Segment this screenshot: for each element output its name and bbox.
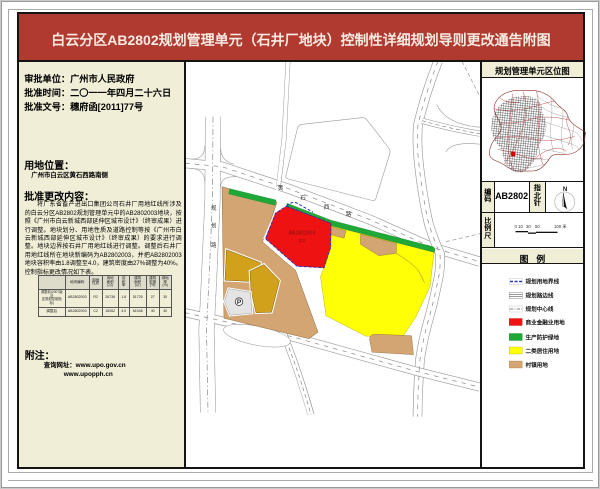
svg-text:N: N: [563, 186, 568, 193]
svg-text:规划用地界线: 规划用地界线: [526, 277, 560, 285]
svg-text:村镇用地: 村镇用地: [526, 361, 549, 369]
svg-text:30: 30: [526, 224, 531, 229]
svg-text:路: 路: [346, 210, 352, 218]
svg-text:100 米: 100 米: [554, 223, 567, 230]
svg-text:黄: 黄: [278, 184, 284, 192]
svg-text:商业金融业用地: 商业金融业用地: [526, 318, 566, 326]
svg-text:规划中心线: 规划中心线: [526, 305, 554, 313]
svg-text:路: 路: [211, 241, 217, 249]
svg-text:生产防护绿地: 生产防护绿地: [526, 333, 560, 341]
svg-text:划: 划: [211, 222, 216, 230]
svg-text:石: 石: [300, 195, 306, 202]
svg-text:P: P: [237, 299, 242, 306]
svg-text:50: 50: [535, 224, 540, 229]
svg-text:西: 西: [324, 204, 330, 211]
svg-text:0 10: 0 10: [514, 224, 523, 229]
svg-text:AB2802003: AB2802003: [289, 231, 316, 237]
svg-text:二类居住用地: 二类居住用地: [526, 347, 560, 355]
svg-text:规: 规: [211, 204, 217, 212]
svg-text:C2: C2: [299, 238, 306, 244]
svg-text:规划路边线: 规划路边线: [526, 291, 554, 299]
